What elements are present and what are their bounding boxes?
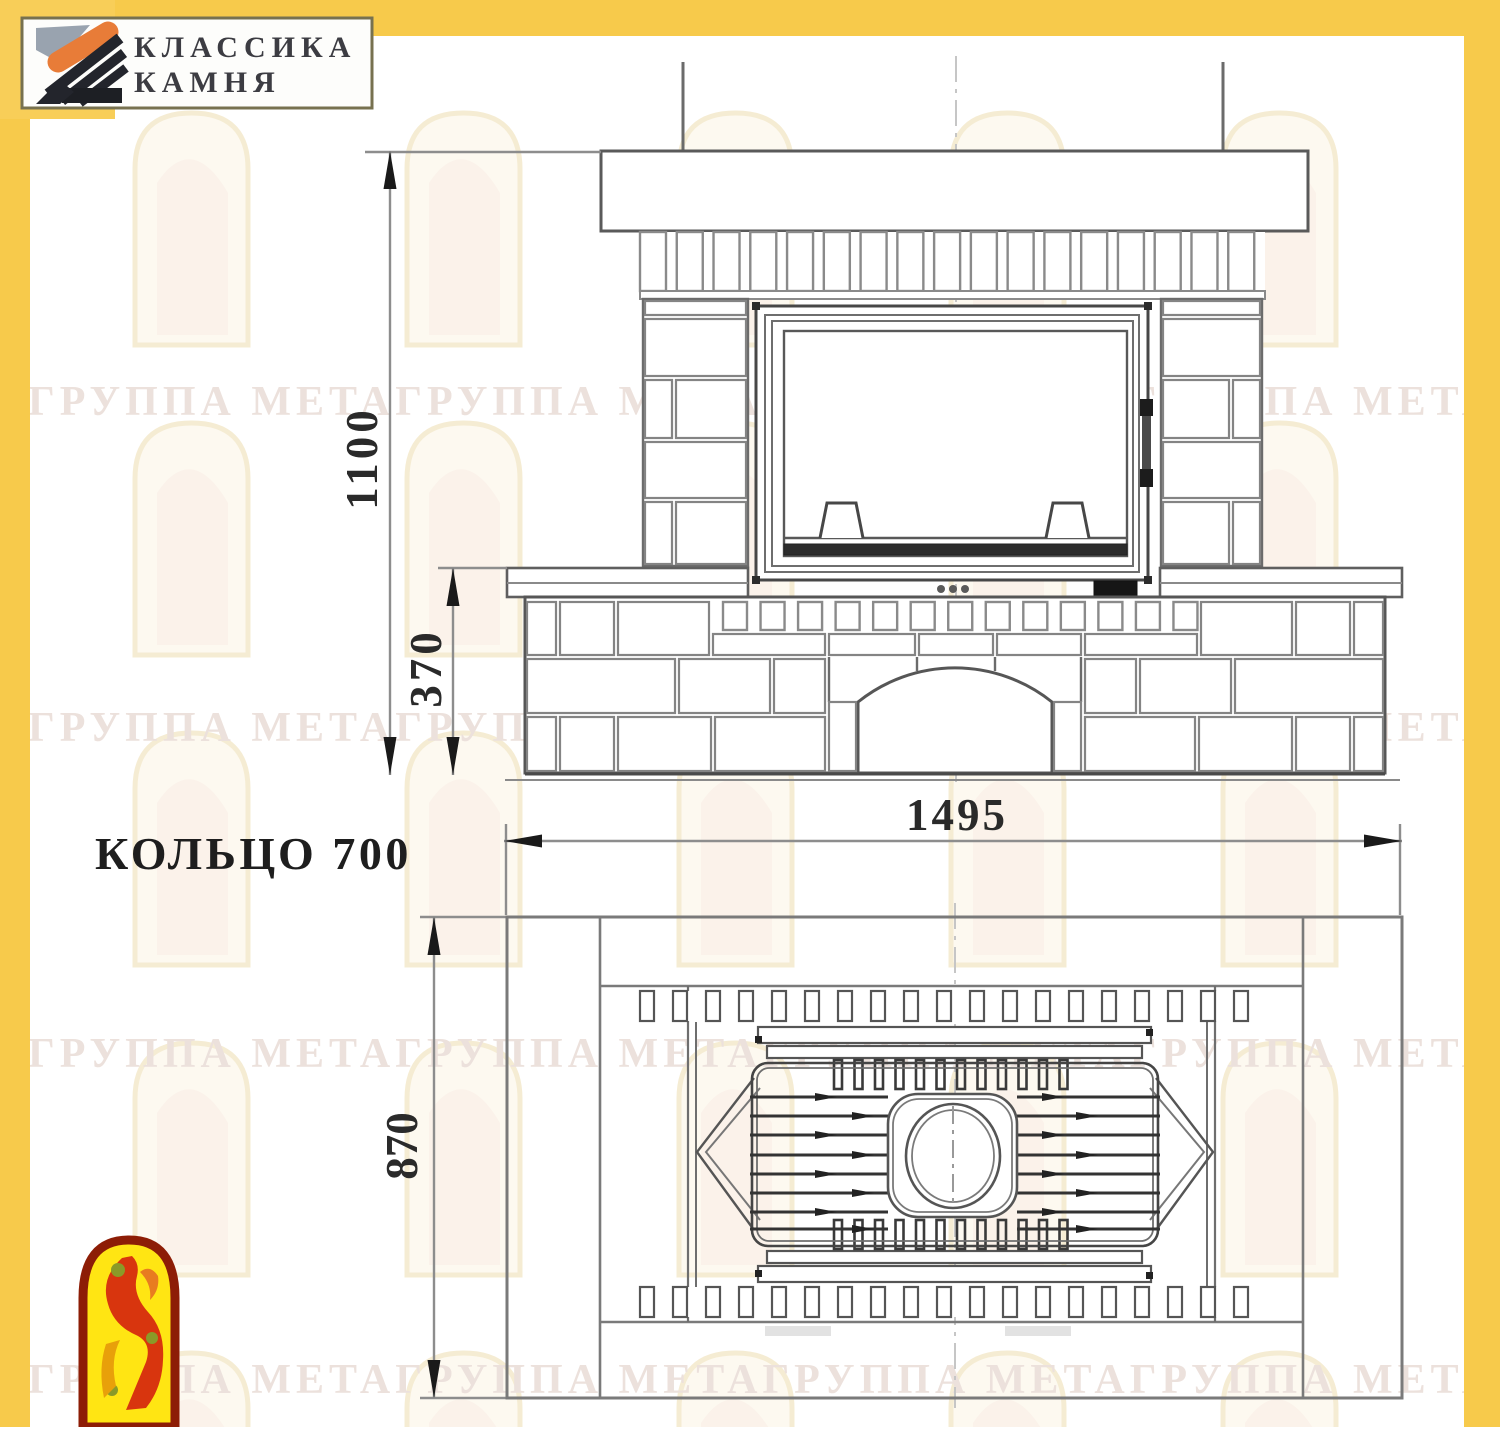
svg-text:КАМНЯ: КАМНЯ: [134, 66, 281, 99]
svg-text:КОЛЬЦО 700: КОЛЬЦО 700: [95, 828, 412, 879]
svg-text:1100: 1100: [337, 406, 387, 510]
svg-text:1495: 1495: [906, 790, 1008, 840]
svg-text:870: 870: [377, 1112, 427, 1180]
svg-text:КЛАССИКА: КЛАССИКА: [134, 31, 356, 64]
svg-text:370: 370: [401, 628, 451, 708]
svg-text:ГРУППА МЕТАГРУППА МЕТАГРУППА М: ГРУППА МЕТАГРУППА МЕТАГРУППА МЕТАГРУППА …: [28, 1357, 1500, 1403]
